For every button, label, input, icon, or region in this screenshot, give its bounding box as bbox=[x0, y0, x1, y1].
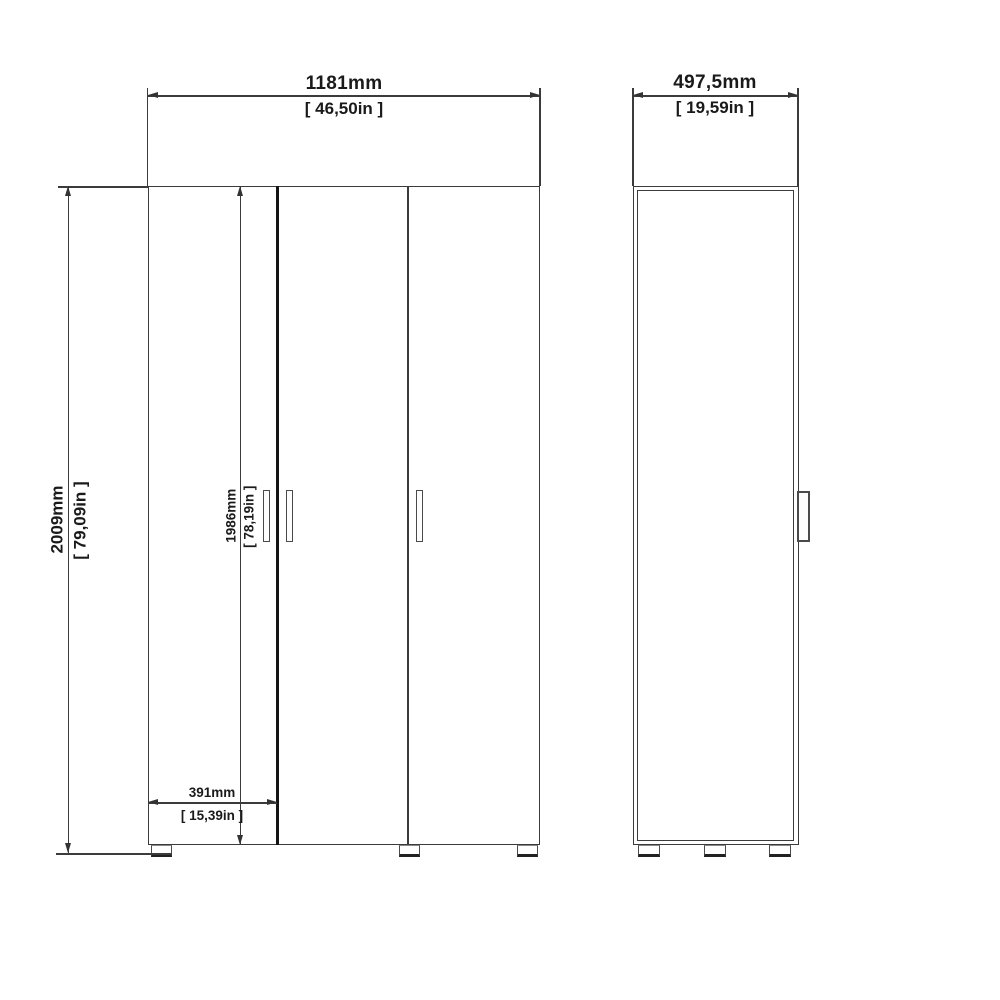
extension-line bbox=[797, 88, 799, 186]
door-height-mm-label: 1986mm bbox=[224, 446, 238, 586]
dim-arrowhead-down-icon bbox=[237, 835, 243, 845]
dim-arrowhead-left-icon bbox=[148, 92, 158, 98]
dim-arrowhead-right-icon bbox=[267, 799, 277, 805]
side-panel-inner-outline bbox=[637, 190, 794, 841]
extension-line bbox=[58, 186, 148, 188]
front-height-mm-label: 2009mm bbox=[49, 450, 66, 590]
door-width-in-label: [ 15,39in ] bbox=[152, 809, 272, 823]
dim-arrowhead-right-icon bbox=[530, 92, 540, 98]
dim-arrowhead-right-icon bbox=[788, 92, 798, 98]
door-height-in-label: [ 78,19in ] bbox=[242, 447, 256, 587]
technical-drawing-canvas: 1181mm [ 46,50in ] 2009mm [ 79,09in ] 19… bbox=[0, 0, 1000, 1000]
dimension-line bbox=[148, 802, 277, 804]
front-width-in-label: [ 46,50in ] bbox=[264, 100, 424, 117]
front-foot-left bbox=[151, 845, 172, 857]
front-foot-right bbox=[517, 845, 538, 857]
dim-arrowhead-up-icon bbox=[237, 186, 243, 196]
dimension-line bbox=[633, 95, 798, 97]
dim-arrowhead-left-icon bbox=[633, 92, 643, 98]
front-foot-middle bbox=[399, 845, 420, 857]
side-door-handle-icon bbox=[797, 491, 810, 542]
right-door-handle-icon bbox=[416, 490, 423, 542]
side-foot-back bbox=[638, 845, 660, 857]
side-foot-front bbox=[769, 845, 791, 857]
side-depth-in-label: [ 19,59in ] bbox=[635, 99, 795, 116]
front-cabinet-outline bbox=[148, 186, 540, 845]
middle-door-handle-icon bbox=[286, 490, 293, 542]
front-door-divider-left bbox=[276, 186, 279, 845]
dim-arrowhead-up-icon bbox=[65, 186, 71, 196]
dimension-line bbox=[68, 186, 70, 853]
door-width-mm-label: 391mm bbox=[152, 786, 272, 800]
side-depth-mm-label: 497,5mm bbox=[635, 73, 795, 92]
left-door-handle-icon bbox=[263, 490, 270, 542]
extension-line bbox=[539, 88, 541, 186]
side-foot-middle bbox=[704, 845, 726, 857]
front-height-in-label: [ 79,09in ] bbox=[72, 451, 89, 591]
dim-arrowhead-left-icon bbox=[148, 799, 158, 805]
extension-line bbox=[56, 853, 172, 855]
dimension-line bbox=[148, 95, 540, 97]
extension-line bbox=[632, 88, 634, 186]
extension-line bbox=[147, 88, 149, 186]
front-door-divider-right bbox=[407, 186, 409, 845]
front-width-mm-label: 1181mm bbox=[264, 74, 424, 93]
dim-arrowhead-down-icon bbox=[65, 843, 71, 853]
